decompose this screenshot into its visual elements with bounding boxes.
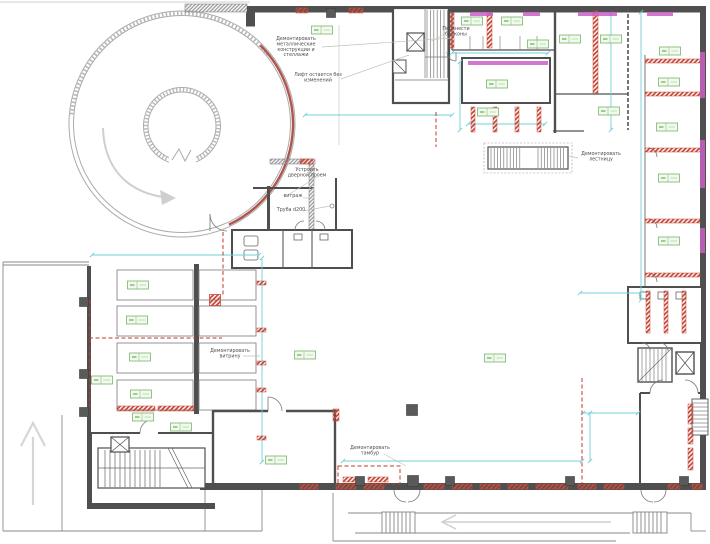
demolition-hatch (471, 107, 475, 132)
annotation-make-door-opening: Устроитьдверной проем (288, 167, 327, 178)
demolition-hatch (257, 388, 266, 392)
demolition-hatch (593, 11, 598, 93)
column (680, 477, 689, 486)
stair-treads-left (386, 512, 410, 533)
room-tag (657, 123, 678, 131)
stairs (98, 8, 708, 488)
glazing-mark (523, 12, 540, 16)
demolition-hatch (257, 361, 266, 365)
room-tags (92, 17, 681, 464)
column (408, 476, 419, 487)
demolition-hatch (668, 484, 680, 489)
stair-exterior-br (692, 399, 708, 435)
floor-plan-drawing: Демонтироватьметаллическиеконструкции ис… (0, 0, 710, 544)
room-tag (130, 353, 151, 361)
glazing-mark (470, 12, 493, 16)
column (80, 370, 89, 379)
demolition-hatch (257, 436, 266, 440)
demolition-hatch (349, 8, 363, 13)
room-tag (599, 107, 620, 115)
demolition-hatch (645, 92, 700, 96)
doors (140, 52, 698, 502)
annotation-pipe-d200: Труба d200 (276, 207, 305, 213)
demolition-hatch (117, 406, 155, 411)
column (80, 408, 89, 417)
dimension-line (588, 411, 592, 463)
glazing-mark (700, 228, 705, 253)
demolition-hatch (688, 404, 693, 424)
demolition-hatch (692, 484, 702, 489)
room-tag (462, 17, 483, 25)
demolition-hatch (364, 484, 384, 489)
annotation-glazing: витраж (283, 194, 303, 199)
room-tag (485, 354, 506, 362)
leader-line (569, 156, 578, 158)
column (327, 9, 336, 18)
column (80, 298, 89, 307)
column (566, 477, 575, 486)
leader-line (384, 454, 406, 466)
demolition-hatch (578, 484, 596, 489)
site-arrow-up (21, 423, 45, 505)
room-tag (127, 316, 148, 324)
glazing-mark (578, 12, 617, 16)
stalls-spine-wall (194, 264, 199, 414)
room-tag (601, 35, 622, 43)
glazing-mark (700, 52, 705, 98)
annotation-demolish-stair: Демонтироватьлестницу (581, 151, 621, 162)
dimension-line (341, 459, 584, 463)
demolition-hatch (604, 484, 624, 489)
room-tag (528, 40, 549, 48)
room-tag (478, 108, 499, 116)
glazing-mark (647, 12, 673, 16)
room-tag (659, 174, 680, 182)
annotation-demolish-shelving: Демонтироватьметаллическиеконструкции ис… (276, 36, 316, 58)
room-tag (295, 351, 316, 359)
demolition-hatch (664, 291, 668, 333)
leader-line (303, 206, 330, 211)
demolition-hatch (257, 281, 266, 285)
annotation-demolish-showcase: Демонтироватьвитрину (210, 348, 250, 359)
room-tag (128, 281, 149, 289)
dimension-line (303, 113, 454, 117)
room-tag (502, 17, 523, 25)
top-wall-hatched (185, 4, 247, 12)
glazing-mark (468, 61, 548, 65)
demolition-hatch (300, 484, 318, 489)
room-tag (487, 80, 508, 88)
ramp-direction-arrow (103, 128, 163, 197)
pipe-d200-symbol (330, 204, 334, 208)
demolition-hatch (688, 448, 693, 470)
demolition-hatch (645, 273, 700, 277)
demolition-hatch (296, 8, 308, 13)
dimension-line (450, 51, 550, 55)
glazing-mark (700, 140, 705, 188)
demolition-hatch (333, 409, 339, 421)
top-wall (247, 6, 706, 13)
demolition-hatch (424, 484, 444, 489)
demolition-hatch (257, 328, 266, 332)
demolition-hatch (515, 107, 519, 132)
floor-plan-canvas: Демонтироватьметаллическиеконструкции ис… (0, 0, 710, 544)
room-tag (660, 47, 681, 55)
ramp-hatch-arc (71, 13, 269, 114)
exterior-paths (3, 262, 706, 541)
room-tag (659, 78, 680, 86)
demolition-hatch (452, 484, 472, 489)
annotation-move-balconies: Перенестибалконы (442, 26, 469, 37)
room-tag (133, 413, 154, 421)
room-tag (659, 237, 680, 245)
demolition-hatch (682, 291, 686, 333)
dimension-line (466, 122, 547, 126)
room-tag (312, 26, 333, 34)
demolition-hatch (646, 291, 650, 333)
demolition-hatch (336, 484, 356, 489)
annotation-demolish-vestibule: Демонтироватьтамбур (350, 445, 390, 456)
column (356, 477, 365, 486)
demolition-hatch (645, 59, 700, 63)
ramp-arrowhead (160, 190, 176, 205)
column-demolish (210, 295, 221, 306)
demolition-hatch (536, 484, 556, 489)
room-tag (171, 423, 192, 431)
demolition-hatch (688, 428, 693, 444)
demolition-hatch (508, 484, 528, 489)
circular-ramp (69, 11, 295, 237)
room-tag (92, 376, 113, 384)
demolition-hatch (645, 219, 700, 223)
demolition-hatch (645, 148, 700, 152)
annotation-lift-unchanged: Лифт остается безизменений (294, 72, 342, 83)
room-tag (266, 456, 287, 464)
demolition-hatch (158, 406, 194, 411)
reference-lines (330, 25, 339, 208)
column (446, 477, 455, 486)
demolition-hatch (487, 13, 492, 48)
dimension-line (639, 10, 643, 302)
dimension-line (260, 256, 264, 464)
walkway-arrow-left (442, 515, 611, 529)
column (407, 405, 418, 416)
room-tag (131, 390, 152, 398)
demolition-hatch (480, 484, 500, 489)
demolition-hatch (300, 159, 313, 164)
room-tag (560, 35, 581, 43)
demolition-hatch (537, 107, 541, 132)
demolition-hatch (368, 477, 388, 482)
